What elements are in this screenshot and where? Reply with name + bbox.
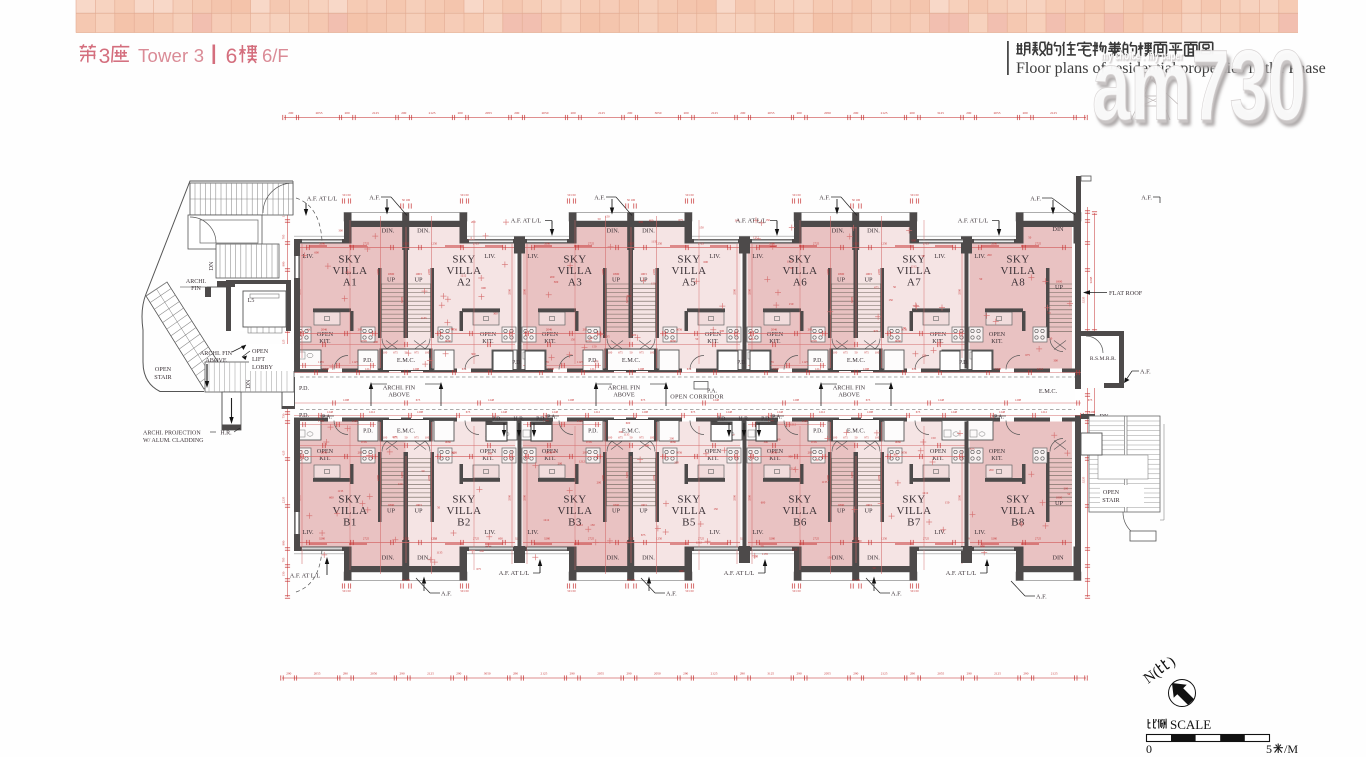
svg-text:1212: 1212 xyxy=(696,541,703,545)
svg-text:ARCHI. FIN: ARCHI. FIN xyxy=(833,385,866,392)
svg-text:1135: 1135 xyxy=(318,360,324,364)
svg-text:SKY: SKY xyxy=(452,494,475,506)
svg-text:2725: 2725 xyxy=(1035,537,1042,541)
svg-text:STAIR: STAIR xyxy=(1102,497,1120,504)
svg-text:A.F.: A.F. xyxy=(819,195,830,202)
svg-text:A.F.: A.F. xyxy=(369,195,380,202)
svg-text:675: 675 xyxy=(466,410,471,414)
svg-text:my choice : my paper: my choice : my paper xyxy=(1101,51,1183,63)
svg-text:1800: 1800 xyxy=(1056,280,1063,284)
svg-text:1212: 1212 xyxy=(594,410,601,414)
svg-text:A2: A2 xyxy=(457,277,471,289)
svg-text:/M: /M xyxy=(1284,742,1298,756)
svg-text:975: 975 xyxy=(414,351,419,355)
svg-text:OPEN: OPEN xyxy=(989,331,1006,338)
svg-text:3500: 3500 xyxy=(523,495,527,502)
svg-text:2125: 2125 xyxy=(429,111,436,115)
svg-text:3500: 3500 xyxy=(958,495,962,502)
svg-text:2725: 2725 xyxy=(813,242,820,246)
svg-text:1135: 1135 xyxy=(822,480,828,484)
svg-text:600: 600 xyxy=(857,539,862,543)
svg-text:100: 100 xyxy=(608,436,613,440)
svg-text:KIT.: KIT. xyxy=(482,338,494,345)
svg-text:200: 200 xyxy=(306,327,311,331)
svg-text:50: 50 xyxy=(790,266,794,270)
svg-text:2125: 2125 xyxy=(1050,111,1057,115)
svg-text:ARCHI. FIN: ARCHI. FIN xyxy=(608,385,641,392)
svg-text:1248: 1248 xyxy=(713,398,720,402)
svg-text:675: 675 xyxy=(641,398,646,402)
svg-text:600: 600 xyxy=(498,537,503,541)
svg-text:KIT.: KIT. xyxy=(932,455,944,462)
svg-text:1003: 1003 xyxy=(640,503,647,507)
svg-text:290: 290 xyxy=(797,672,802,676)
svg-text:DIN.: DIN. xyxy=(832,228,845,235)
svg-text:50 150: 50 150 xyxy=(910,589,919,593)
svg-text:2395: 2395 xyxy=(826,269,830,276)
svg-text:150: 150 xyxy=(398,482,403,486)
svg-text:50: 50 xyxy=(630,436,634,440)
svg-text:1003: 1003 xyxy=(865,272,872,276)
svg-text:2050: 2050 xyxy=(542,111,549,115)
svg-text:A.F.: A.F. xyxy=(1030,196,1041,203)
svg-text:675: 675 xyxy=(393,435,398,439)
svg-text:2395: 2395 xyxy=(877,475,881,482)
svg-text:2125: 2125 xyxy=(711,672,718,676)
svg-text:50 100: 50 100 xyxy=(852,198,861,202)
svg-text:50 100: 50 100 xyxy=(852,578,861,582)
svg-text:P.D.: P.D. xyxy=(959,360,969,366)
svg-text:150: 150 xyxy=(931,436,936,440)
svg-text:A.F. AT L/L: A.F. AT L/L xyxy=(499,570,530,577)
svg-text:50 150: 50 150 xyxy=(460,193,469,197)
svg-text:KIT.: KIT. xyxy=(769,455,781,462)
svg-text:3280: 3280 xyxy=(319,537,326,541)
svg-text:50: 50 xyxy=(903,326,907,330)
svg-text:50 150: 50 150 xyxy=(685,589,694,593)
svg-text:SKY: SKY xyxy=(1006,494,1029,506)
svg-text:A8: A8 xyxy=(1011,277,1025,289)
svg-text:300: 300 xyxy=(788,454,793,458)
svg-text:2725: 2725 xyxy=(813,537,820,541)
svg-text:DIN.: DIN. xyxy=(417,555,430,562)
svg-text:2125: 2125 xyxy=(427,672,434,676)
svg-text:150: 150 xyxy=(449,327,454,331)
svg-text:3056: 3056 xyxy=(901,451,908,455)
svg-text:1212: 1212 xyxy=(1037,367,1044,371)
svg-text:3500: 3500 xyxy=(958,289,962,296)
svg-text:200: 200 xyxy=(797,111,802,115)
svg-text:2395: 2395 xyxy=(601,475,605,482)
svg-text:600: 600 xyxy=(626,421,631,425)
svg-text:50: 50 xyxy=(598,217,602,221)
svg-text:600: 600 xyxy=(720,329,725,333)
svg-text:2055: 2055 xyxy=(316,111,323,115)
svg-text:2050: 2050 xyxy=(370,672,377,676)
svg-text:L5: L5 xyxy=(248,298,255,304)
svg-text:1135: 1135 xyxy=(651,240,657,244)
svg-text:3280: 3280 xyxy=(544,537,551,541)
svg-text:ABOVE: ABOVE xyxy=(613,392,635,399)
svg-text:P.D.: P.D. xyxy=(813,429,823,435)
svg-text:9795: 9795 xyxy=(586,440,593,444)
svg-text:1248: 1248 xyxy=(777,410,784,414)
svg-text:150: 150 xyxy=(570,338,575,342)
svg-text:1125: 1125 xyxy=(352,419,358,423)
svg-text:1248: 1248 xyxy=(488,398,495,402)
svg-text:1298: 1298 xyxy=(343,398,350,402)
svg-text:2046: 2046 xyxy=(546,451,553,455)
svg-text:100: 100 xyxy=(425,351,430,355)
svg-text:50 150: 50 150 xyxy=(685,193,694,197)
svg-text:DN: DN xyxy=(208,261,215,270)
svg-text:200: 200 xyxy=(358,451,363,455)
svg-text:150: 150 xyxy=(713,507,718,511)
svg-text:H.R.: H.R. xyxy=(514,417,526,423)
svg-text:E.M.C.: E.M.C. xyxy=(397,357,416,364)
svg-text:785: 785 xyxy=(282,557,286,562)
svg-text:2046: 2046 xyxy=(546,328,553,332)
svg-text:P.A.: P.A. xyxy=(547,415,558,421)
svg-text:P.D.: P.D. xyxy=(813,358,823,364)
svg-text:200: 200 xyxy=(669,437,674,441)
svg-text:OPEN: OPEN xyxy=(542,331,559,338)
svg-text:50 150: 50 150 xyxy=(910,193,919,197)
svg-text:KIT.: KIT. xyxy=(991,338,1003,345)
svg-text:3500: 3500 xyxy=(748,495,752,502)
svg-text:1248: 1248 xyxy=(951,410,958,414)
svg-text:50 150: 50 150 xyxy=(567,193,576,197)
svg-text:1135: 1135 xyxy=(437,551,443,555)
svg-text:50: 50 xyxy=(893,285,897,289)
svg-text:LIV.: LIV. xyxy=(527,253,539,260)
svg-text:975: 975 xyxy=(864,351,869,355)
svg-text:B2: B2 xyxy=(457,517,471,529)
svg-text:50: 50 xyxy=(855,351,859,355)
svg-text:200: 200 xyxy=(645,443,650,447)
svg-text:675: 675 xyxy=(462,367,467,371)
svg-text:OPEN: OPEN xyxy=(480,331,497,338)
svg-text:2055: 2055 xyxy=(937,672,944,676)
svg-text:2046: 2046 xyxy=(321,451,328,455)
svg-text:SKY: SKY xyxy=(677,254,700,266)
svg-text:2055: 2055 xyxy=(768,111,775,115)
svg-text:150: 150 xyxy=(945,501,950,505)
svg-text:A.F.: A.F. xyxy=(891,591,902,598)
svg-text:200: 200 xyxy=(966,111,971,115)
svg-text:B8: B8 xyxy=(1011,517,1025,529)
svg-text:2125: 2125 xyxy=(403,242,410,246)
svg-text:1125: 1125 xyxy=(802,360,808,364)
svg-text:P.A.: P.A. xyxy=(322,415,333,421)
svg-text:3050: 3050 xyxy=(655,111,662,115)
svg-text:785: 785 xyxy=(282,234,286,239)
svg-text:675: 675 xyxy=(618,351,623,355)
svg-text:KIT.: KIT. xyxy=(932,338,944,345)
svg-text:200: 200 xyxy=(374,340,379,344)
svg-text:50: 50 xyxy=(1028,236,1032,240)
svg-text:3485: 3485 xyxy=(400,296,404,303)
svg-text:2050: 2050 xyxy=(824,111,831,115)
svg-text:OPEN: OPEN xyxy=(767,331,784,338)
svg-text:2235: 2235 xyxy=(282,496,286,503)
svg-text:UP: UP xyxy=(837,277,846,284)
svg-text:A.F.: A.F. xyxy=(1140,369,1151,376)
svg-text:100: 100 xyxy=(833,436,838,440)
svg-text:675: 675 xyxy=(687,367,692,371)
svg-text:50 100: 50 100 xyxy=(402,198,411,202)
svg-text:9060: 9060 xyxy=(895,440,902,444)
svg-text:A.F.: A.F. xyxy=(666,591,677,598)
svg-text:3280: 3280 xyxy=(769,537,776,541)
svg-text:1298: 1298 xyxy=(568,398,575,402)
svg-text:2725: 2725 xyxy=(1035,242,1042,246)
svg-text:675: 675 xyxy=(1088,398,1093,402)
svg-text:600: 600 xyxy=(912,239,917,243)
svg-text:1212: 1212 xyxy=(815,367,822,371)
svg-text:675: 675 xyxy=(970,447,975,451)
svg-text:UP: UP xyxy=(639,508,648,515)
svg-text:0: 0 xyxy=(1146,742,1152,756)
svg-text:600: 600 xyxy=(481,286,486,290)
svg-text:H.R.: H.R. xyxy=(220,431,232,437)
svg-text:50 100: 50 100 xyxy=(627,198,636,202)
svg-text:675: 675 xyxy=(691,410,696,414)
svg-text:1250: 1250 xyxy=(881,537,888,541)
svg-text:3485: 3485 xyxy=(850,296,854,303)
svg-text:200: 200 xyxy=(571,111,576,115)
svg-text:KIT.: KIT. xyxy=(319,455,331,462)
svg-text:675: 675 xyxy=(843,351,848,355)
svg-text:P.D.: P.D. xyxy=(363,358,373,364)
svg-text:DIN.: DIN. xyxy=(867,228,880,235)
svg-text:150: 150 xyxy=(592,345,597,349)
svg-text:OPEN: OPEN xyxy=(989,448,1006,455)
svg-text:200: 200 xyxy=(674,461,679,465)
svg-text:LIFT: LIFT xyxy=(252,356,265,363)
svg-text:1212: 1212 xyxy=(431,536,438,540)
svg-text:100: 100 xyxy=(875,351,880,355)
svg-text:50: 50 xyxy=(979,277,983,281)
svg-text:2395: 2395 xyxy=(652,269,656,276)
svg-text:100: 100 xyxy=(425,436,430,440)
svg-text:50: 50 xyxy=(1049,336,1053,340)
svg-text:1298: 1298 xyxy=(1015,398,1022,402)
svg-text:3056: 3056 xyxy=(676,328,683,332)
svg-text:600: 600 xyxy=(627,294,632,298)
svg-text:200: 200 xyxy=(597,481,602,485)
svg-text:2125: 2125 xyxy=(1051,672,1058,676)
svg-text:290: 290 xyxy=(967,672,972,676)
svg-text:DN: DN xyxy=(245,379,252,388)
svg-text:A.F. AT L/L: A.F. AT L/L xyxy=(511,218,542,225)
svg-text:150: 150 xyxy=(789,302,794,306)
svg-text:50 150: 50 150 xyxy=(792,193,801,197)
svg-text:LIV.: LIV. xyxy=(752,529,764,536)
svg-text:50: 50 xyxy=(1067,492,1071,496)
svg-text:1248: 1248 xyxy=(501,410,508,414)
svg-text:750: 750 xyxy=(282,413,286,418)
svg-text:2125: 2125 xyxy=(994,672,1001,676)
svg-text:100: 100 xyxy=(383,436,388,440)
svg-text:50: 50 xyxy=(553,450,557,454)
svg-text:100: 100 xyxy=(383,351,388,355)
svg-text:600: 600 xyxy=(649,218,654,222)
svg-text:600: 600 xyxy=(314,251,319,255)
svg-text:3235: 3235 xyxy=(1082,476,1086,483)
svg-text:P.A.: P.A. xyxy=(772,415,783,421)
svg-text:1212: 1212 xyxy=(819,410,826,414)
svg-text:300: 300 xyxy=(338,228,343,232)
svg-text:KIT.: KIT. xyxy=(544,455,556,462)
svg-text:200: 200 xyxy=(740,111,745,115)
svg-text:DIN.: DIN. xyxy=(832,555,845,562)
svg-text:675: 675 xyxy=(416,398,421,402)
svg-text:A.F. AT L/L: A.F. AT L/L xyxy=(290,573,321,580)
svg-text:LIV.: LIV. xyxy=(302,529,314,536)
svg-text:50: 50 xyxy=(437,506,441,510)
svg-text:2055: 2055 xyxy=(824,672,831,676)
svg-text:9795: 9795 xyxy=(361,440,368,444)
svg-text:675: 675 xyxy=(641,533,646,537)
svg-text:1248: 1248 xyxy=(327,410,334,414)
svg-text:290: 290 xyxy=(343,672,348,676)
svg-text:1212: 1212 xyxy=(1041,410,1048,414)
svg-text:1298: 1298 xyxy=(417,410,424,414)
svg-text:9060: 9060 xyxy=(445,440,452,444)
svg-text:LIV.: LIV. xyxy=(934,253,946,260)
svg-text:DIN.: DIN. xyxy=(607,228,620,235)
svg-text:UP: UP xyxy=(612,277,621,284)
svg-text:1212: 1212 xyxy=(365,367,372,371)
svg-text:E.M.C.: E.M.C. xyxy=(847,357,866,364)
svg-text:290: 290 xyxy=(1023,672,1028,676)
svg-text:2725: 2725 xyxy=(588,537,595,541)
svg-text:200: 200 xyxy=(627,111,632,115)
svg-text:2125: 2125 xyxy=(372,111,379,115)
svg-text:LIV.: LIV. xyxy=(709,529,721,536)
svg-text:150: 150 xyxy=(922,353,927,357)
svg-text:2395: 2395 xyxy=(427,475,431,482)
svg-text:1003: 1003 xyxy=(865,503,872,507)
svg-text:1248: 1248 xyxy=(323,367,330,371)
svg-text:150: 150 xyxy=(605,215,610,219)
svg-text:50: 50 xyxy=(816,458,820,462)
svg-text:A.F. AT L/L: A.F. AT L/L xyxy=(307,196,338,203)
svg-text:DIN: DIN xyxy=(1052,226,1064,233)
svg-text:3500: 3500 xyxy=(508,289,512,296)
svg-text:3500: 3500 xyxy=(523,289,527,296)
svg-text:2055: 2055 xyxy=(994,111,1001,115)
svg-text:200: 200 xyxy=(288,111,293,115)
svg-text:2046: 2046 xyxy=(771,451,778,455)
svg-text:290: 290 xyxy=(456,672,461,676)
svg-text:FLAT ROOF: FLAT ROOF xyxy=(1109,290,1143,297)
svg-text:1212: 1212 xyxy=(590,367,597,371)
svg-text:2055: 2055 xyxy=(314,672,321,676)
svg-text:B7: B7 xyxy=(907,517,921,529)
svg-text:3485: 3485 xyxy=(625,471,629,478)
svg-text:980: 980 xyxy=(282,261,286,266)
svg-text:675: 675 xyxy=(843,436,848,440)
svg-text:P.A.: P.A. xyxy=(994,415,1005,421)
svg-text:675: 675 xyxy=(874,329,879,333)
svg-text:A.F. AT L/L: A.F. AT L/L xyxy=(724,570,755,577)
svg-text:200: 200 xyxy=(358,328,363,332)
svg-text:50: 50 xyxy=(1048,311,1052,315)
svg-text:2050: 2050 xyxy=(654,672,661,676)
svg-text:290: 290 xyxy=(626,672,631,676)
svg-text:9795: 9795 xyxy=(811,440,818,444)
svg-text:3050: 3050 xyxy=(484,672,491,676)
svg-text:A.F. AT L/L: A.F. AT L/L xyxy=(946,570,977,577)
svg-text:50: 50 xyxy=(405,351,409,355)
svg-text:150: 150 xyxy=(827,555,832,559)
svg-text:1248: 1248 xyxy=(548,367,555,371)
svg-text:2725: 2725 xyxy=(363,537,370,541)
svg-text:1135: 1135 xyxy=(787,260,793,264)
svg-text:1212: 1212 xyxy=(543,518,550,522)
svg-text:SKY: SKY xyxy=(1006,254,1029,266)
svg-text:975: 975 xyxy=(639,351,644,355)
svg-text:1250: 1250 xyxy=(881,242,888,246)
svg-text:3500: 3500 xyxy=(733,289,737,296)
svg-text:300: 300 xyxy=(493,312,498,316)
svg-text:9298: 9298 xyxy=(1089,276,1093,283)
svg-text:1125: 1125 xyxy=(352,360,358,364)
svg-text:ABOVE: ABOVE xyxy=(205,357,227,364)
svg-text:50: 50 xyxy=(695,337,699,341)
svg-text:OPEN: OPEN xyxy=(930,448,947,455)
svg-text:1800: 1800 xyxy=(838,272,845,276)
svg-text:9795: 9795 xyxy=(811,339,818,343)
svg-text:290: 290 xyxy=(910,672,915,676)
svg-text:200: 200 xyxy=(550,275,555,279)
svg-text:200: 200 xyxy=(684,111,689,115)
svg-text:1250: 1250 xyxy=(431,242,438,246)
svg-text:3485: 3485 xyxy=(400,471,404,478)
svg-text:A.F.: A.F. xyxy=(1036,594,1047,601)
svg-text:3056: 3056 xyxy=(676,451,683,455)
svg-text:VILLA: VILLA xyxy=(1001,265,1036,277)
svg-text:1125: 1125 xyxy=(577,360,583,364)
svg-text:am730: am730 xyxy=(1092,30,1306,142)
svg-text:100: 100 xyxy=(608,351,613,355)
svg-text:290: 290 xyxy=(740,672,745,676)
svg-text:290: 290 xyxy=(570,672,575,676)
svg-text:3125: 3125 xyxy=(767,672,774,676)
svg-text:2395: 2395 xyxy=(376,475,380,482)
svg-text:200: 200 xyxy=(808,451,813,455)
svg-text:A.F. AT L/L: A.F. AT L/L xyxy=(736,218,767,225)
svg-text:150: 150 xyxy=(626,540,631,544)
svg-text:VILLA: VILLA xyxy=(447,505,482,517)
svg-text:1248: 1248 xyxy=(938,398,945,402)
svg-text:675: 675 xyxy=(874,285,879,289)
svg-text:SKY: SKY xyxy=(677,494,700,506)
svg-text:3280: 3280 xyxy=(991,537,998,541)
svg-text:1212: 1212 xyxy=(922,491,929,495)
svg-text:300: 300 xyxy=(1053,358,1058,362)
svg-text:9060: 9060 xyxy=(895,339,902,343)
svg-text:2395: 2395 xyxy=(652,475,656,482)
svg-text:DIN.: DIN. xyxy=(642,228,655,235)
svg-text:3235: 3235 xyxy=(1082,296,1086,303)
svg-text:2395: 2395 xyxy=(877,269,881,276)
svg-text:KIT.: KIT. xyxy=(991,455,1003,462)
svg-text:UP: UP xyxy=(387,277,396,284)
svg-text:200: 200 xyxy=(471,220,476,224)
